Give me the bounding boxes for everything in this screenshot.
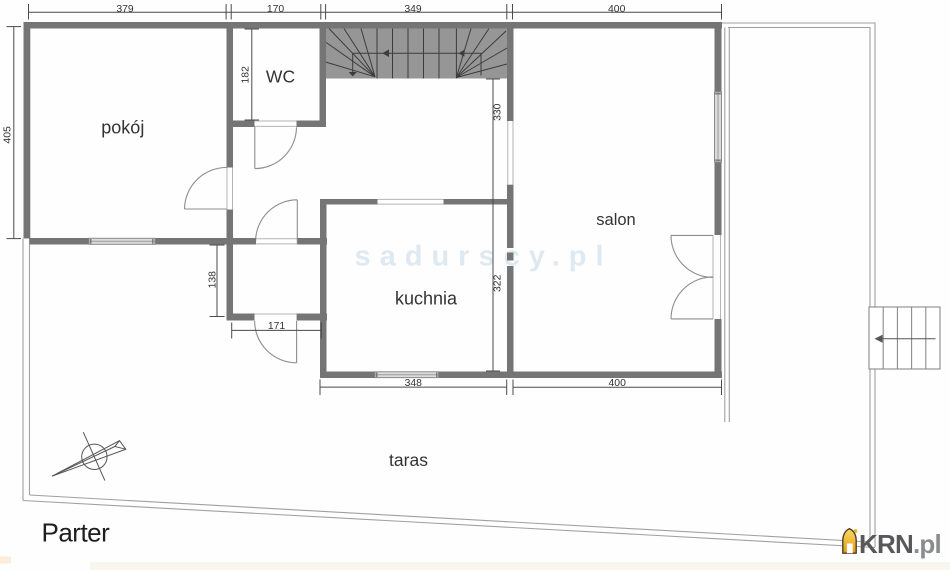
svg-text:138: 138 bbox=[207, 271, 218, 289]
svg-text:taras: taras bbox=[389, 450, 428, 470]
svg-text:182: 182 bbox=[241, 66, 252, 84]
svg-text:322: 322 bbox=[493, 274, 504, 292]
svg-text:Parter: Parter bbox=[42, 518, 111, 548]
svg-text:pokój: pokój bbox=[101, 118, 144, 138]
svg-text:170: 170 bbox=[267, 4, 285, 15]
svg-text:349: 349 bbox=[404, 4, 422, 15]
svg-text:salon: salon bbox=[596, 211, 635, 229]
svg-text:KRN.pl: KRN.pl bbox=[859, 529, 941, 559]
svg-text:400: 400 bbox=[608, 4, 626, 15]
svg-text:379: 379 bbox=[116, 4, 134, 15]
svg-text:400: 400 bbox=[609, 378, 627, 389]
svg-text:405: 405 bbox=[2, 126, 13, 144]
svg-text:kuchnia: kuchnia bbox=[395, 289, 458, 309]
svg-text:348: 348 bbox=[405, 378, 423, 389]
svg-text:330: 330 bbox=[493, 103, 504, 121]
svg-text:WC: WC bbox=[266, 67, 295, 87]
svg-text:171: 171 bbox=[268, 321, 286, 332]
svg-text:sadurscy.pl: sadurscy.pl bbox=[355, 241, 613, 273]
